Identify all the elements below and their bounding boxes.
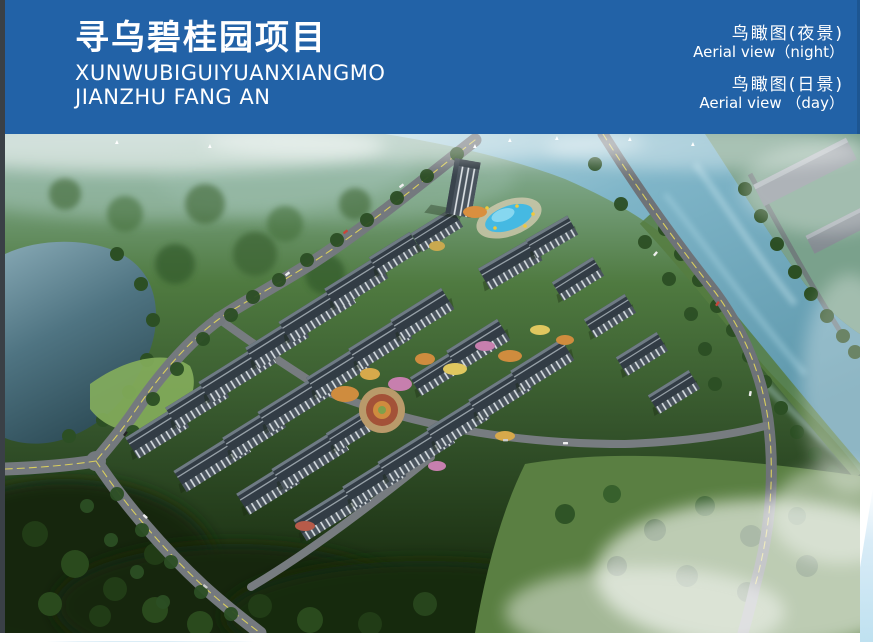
title-block: 寻乌碧桂园项目 XUNWUBIGUIYUANXIANGMO JIANZHU FA… — [75, 20, 385, 109]
footer-wave — [0, 633, 873, 642]
aerial-view-rendering — [5, 134, 860, 633]
header-band: 寻乌碧桂园项目 XUNWUBIGUIYUANXIANGMO JIANZHU FA… — [5, 0, 860, 134]
project-subtitle-line1: XUNWUBIGUIYUANXIANGMO — [75, 62, 385, 86]
view-day-label-en: Aerial view （day） — [693, 95, 844, 112]
corner-accent — [860, 487, 873, 642]
view-day-label-cn: 鸟瞰图(日景) — [693, 75, 844, 95]
view-label-night: 鸟瞰图(夜景) Aerial view（night） — [693, 24, 844, 62]
view-label-day: 鸟瞰图(日景) Aerial view （day） — [693, 75, 844, 113]
view-labels: 鸟瞰图(夜景) Aerial view（night） 鸟瞰图(日景) Aeria… — [693, 24, 844, 125]
project-title-cn: 寻乌碧桂园项目 — [75, 20, 385, 57]
aerial-view-figure — [5, 134, 860, 633]
view-night-label-en: Aerial view（night） — [693, 44, 844, 61]
view-night-label-cn: 鸟瞰图(夜景) — [693, 24, 844, 44]
round-theme-garden — [359, 387, 405, 433]
project-subtitle-line2: JIANZHU FANG AN — [75, 86, 385, 110]
slide-page: 寻乌碧桂园项目 XUNWUBIGUIYUANXIANGMO JIANZHU FA… — [0, 0, 873, 642]
